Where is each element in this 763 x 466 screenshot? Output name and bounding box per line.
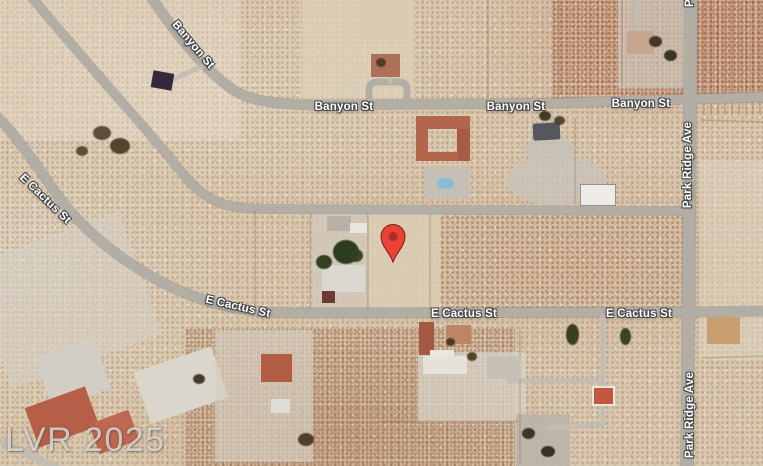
map-pin-dot <box>388 232 397 241</box>
map-pin[interactable] <box>0 0 763 466</box>
map-pin-body <box>381 225 405 263</box>
satellite-map[interactable]: Banyon StBanyon StBanyon StBanyon StE Ca… <box>0 0 763 466</box>
watermark: LVR 2025 <box>5 421 166 460</box>
